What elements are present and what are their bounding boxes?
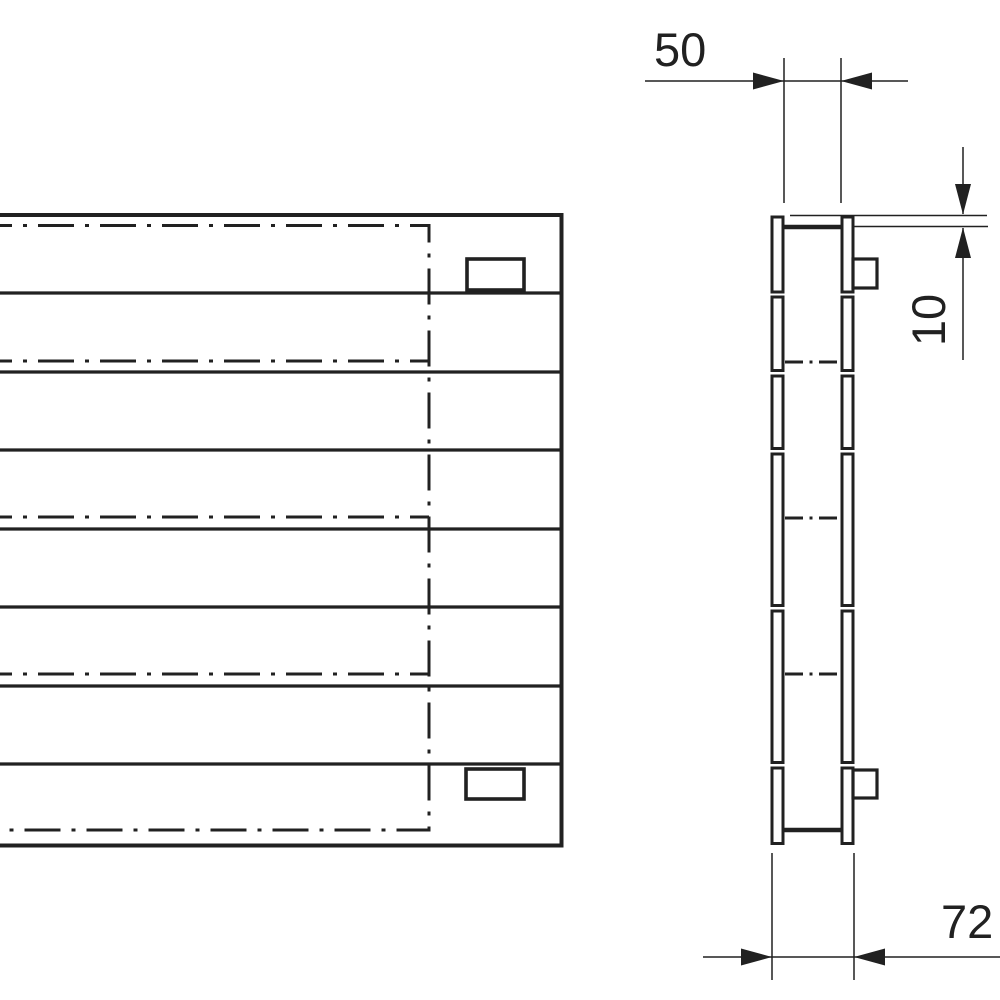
dimension-gap-width: 50 [645,23,908,203]
dimension-label-50: 50 [654,23,706,76]
arrowhead-right-icon [741,949,772,966]
side-top-bracket [853,259,877,288]
arrowhead-left-icon [841,73,872,90]
dimension-top-offset: 10 [790,147,988,360]
front-bottom-bracket [466,769,524,799]
front-view [0,215,562,846]
dimension-label-72: 72 [941,895,993,948]
side-left-rail [772,217,783,844]
rail-segment [842,768,853,844]
arrowhead-up-icon [955,228,971,259]
rail-segment [772,297,783,371]
rail-segment [842,376,853,449]
rail-segment [842,217,853,292]
rail-segment [772,768,783,844]
arrowhead-right-icon [753,73,784,90]
rail-segment [842,611,853,763]
arrowhead-left-icon [854,949,885,966]
rail-segment [772,611,783,763]
side-right-rail [842,217,853,844]
rail-segment [772,376,783,449]
arrowhead-down-icon [955,184,971,215]
side-view [772,217,877,844]
dimension-label-10: 10 [902,294,955,346]
technical-drawing: 50 10 72 [0,0,1000,1000]
rail-segment [842,297,853,371]
rail-segment [772,454,783,606]
drawing-canvas: 50 10 72 [0,0,1000,1000]
side-bottom-bracket [853,770,877,798]
rail-segment [772,217,783,292]
dimension-depth: 72 [703,853,1000,980]
rail-segment [842,454,853,606]
front-top-bracket [467,259,524,290]
